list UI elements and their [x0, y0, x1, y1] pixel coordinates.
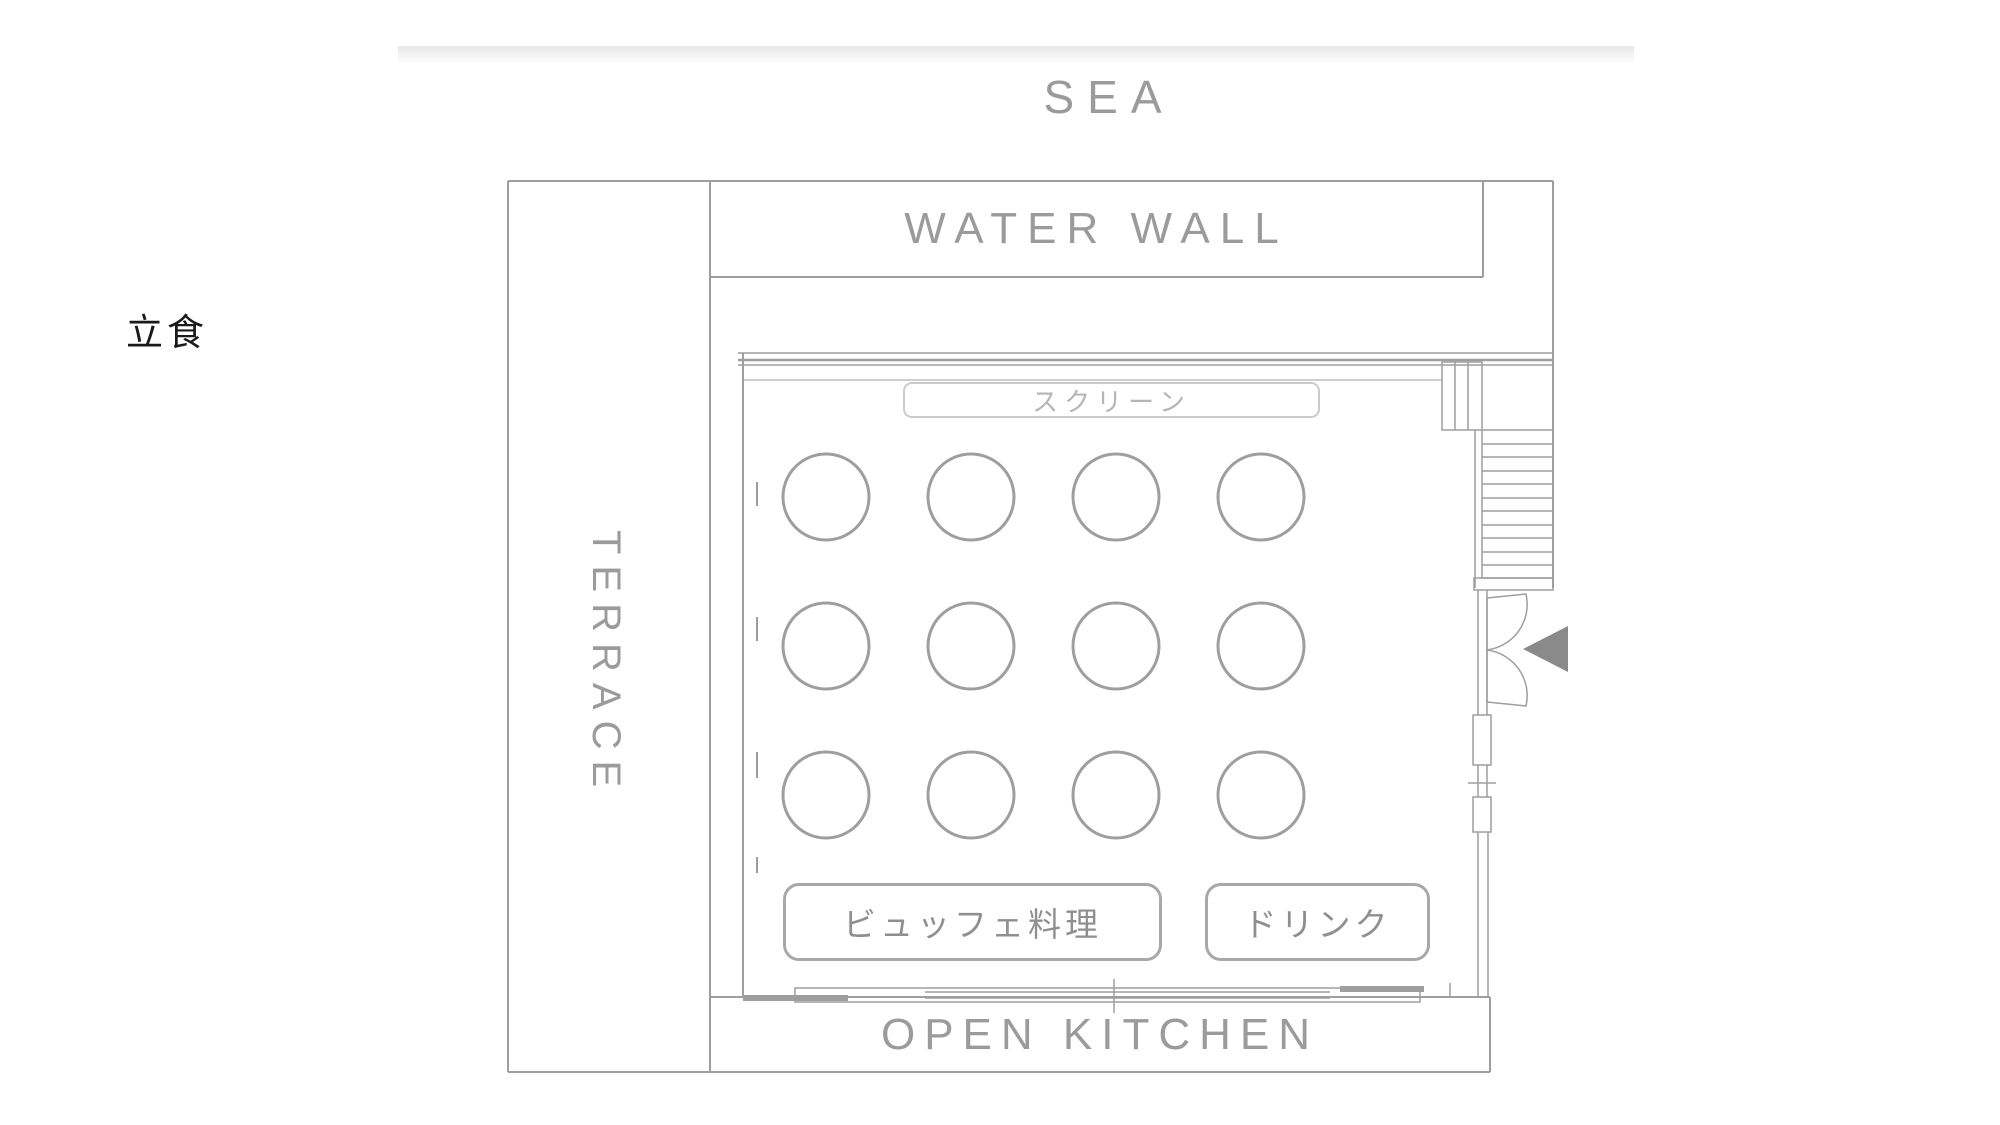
door-leaf-upper — [1487, 594, 1527, 650]
screen-label: スクリーン — [1032, 382, 1191, 419]
terrace-label: TERRACE — [586, 530, 626, 790]
round-table — [928, 752, 1014, 838]
drink-label: ドリンク — [1244, 898, 1392, 946]
table-grid — [783, 454, 1304, 838]
round-table — [1218, 752, 1304, 838]
floor-plan-page: { "page": { "area_label": "SEA", "event_… — [0, 0, 2000, 1125]
round-table — [928, 603, 1014, 689]
open-kitchen-label: OPEN KITCHEN — [881, 1010, 1319, 1060]
round-table — [783, 752, 869, 838]
round-table — [1073, 454, 1159, 540]
round-table — [1218, 454, 1304, 540]
round-table — [1073, 752, 1159, 838]
entrance-doors — [1468, 590, 1568, 997]
door-leaf-lower — [1487, 650, 1527, 706]
round-table — [928, 454, 1014, 540]
door-jamb — [1473, 715, 1491, 765]
door-jamb — [1473, 797, 1491, 832]
water-wall-label: WATER WALL — [904, 204, 1288, 254]
mullion-frame — [1442, 362, 1482, 430]
round-table — [783, 454, 869, 540]
sea-area-label: SEA — [959, 70, 1259, 124]
buffet-label: ビュッフェ料理 — [843, 898, 1102, 946]
entrance-arrow-icon — [1523, 626, 1568, 672]
event-type-label: 立食 — [126, 302, 208, 356]
round-table — [1073, 603, 1159, 689]
open-kitchen-area: OPEN KITCHEN — [710, 997, 1490, 1072]
buffet-table-box: ビュッフェ料理 — [783, 883, 1162, 961]
screen-box: スクリーン — [903, 382, 1320, 418]
round-table — [1218, 603, 1304, 689]
window-mullions — [1442, 362, 1482, 430]
stair-well — [1482, 430, 1553, 578]
staircase — [1474, 430, 1553, 590]
drink-table-box: ドリンク — [1205, 883, 1430, 961]
round-table — [783, 603, 869, 689]
water-wall-area: WATER WALL — [710, 181, 1483, 277]
stair-landing — [1474, 578, 1553, 590]
